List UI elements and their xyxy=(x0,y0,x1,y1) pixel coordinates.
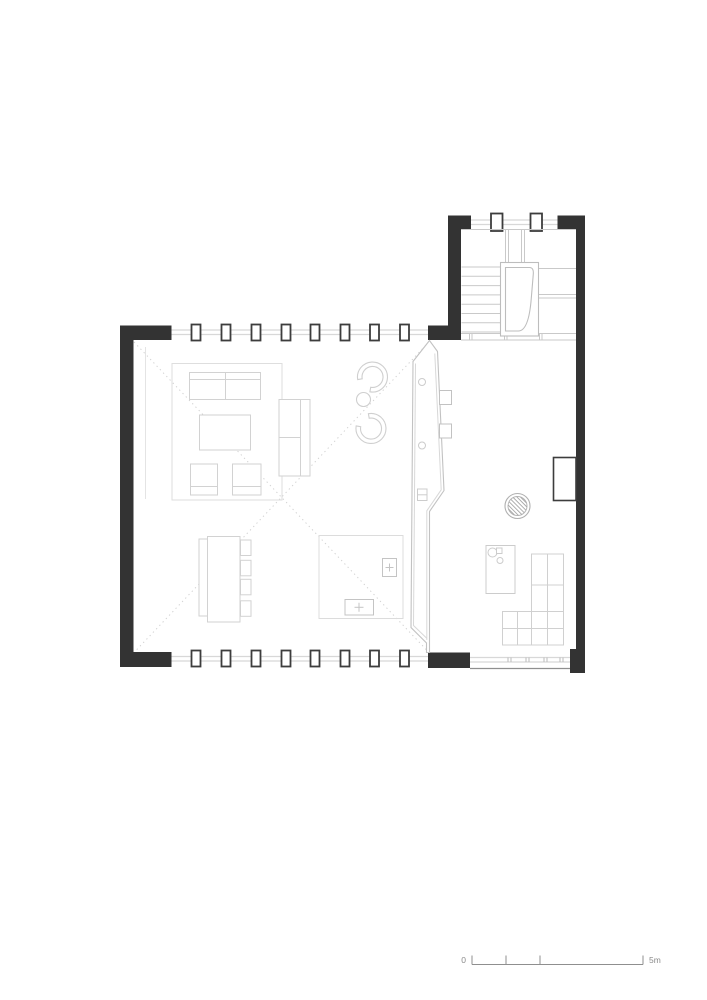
swivel-chair xyxy=(505,494,530,519)
window-mullions-stairwell xyxy=(491,214,542,232)
scale-label-end: 5m xyxy=(649,955,661,965)
sink-basin xyxy=(488,548,497,557)
scale-bar xyxy=(472,956,643,965)
chaise-sofa xyxy=(279,400,310,477)
dining-chairs xyxy=(241,540,252,616)
partition-switch-box xyxy=(418,489,428,501)
partition-wall xyxy=(411,341,452,653)
sofa xyxy=(190,373,261,400)
floor-outlet xyxy=(345,600,374,616)
floor-plan-drawing: 0 5m xyxy=(0,0,707,1000)
side-table xyxy=(357,393,371,407)
lounge-chair xyxy=(356,413,386,443)
platform xyxy=(319,536,403,619)
dining-table xyxy=(208,537,241,623)
dining-bench xyxy=(199,539,208,616)
wall-niche xyxy=(554,458,577,501)
armchair xyxy=(191,464,218,495)
coffee-table xyxy=(200,415,251,450)
floor-outlet xyxy=(383,559,397,577)
cooktop xyxy=(497,548,503,554)
kitchen-counter xyxy=(486,546,515,594)
sink-basin xyxy=(497,558,503,564)
partition-shelf xyxy=(440,391,452,405)
window-mullions-south xyxy=(192,651,410,667)
stair-core xyxy=(501,263,539,337)
partition-shelf xyxy=(440,424,452,438)
floor-plan-page: 0 5m xyxy=(0,0,707,1000)
scale-label-start: 0 xyxy=(461,955,466,965)
partition-spot-light xyxy=(419,442,426,449)
window-band-ticks xyxy=(508,658,563,663)
partition-spot-light xyxy=(419,379,426,386)
window-mullions-north xyxy=(192,325,410,341)
lounge-chair xyxy=(357,362,387,392)
armchair xyxy=(233,464,262,495)
